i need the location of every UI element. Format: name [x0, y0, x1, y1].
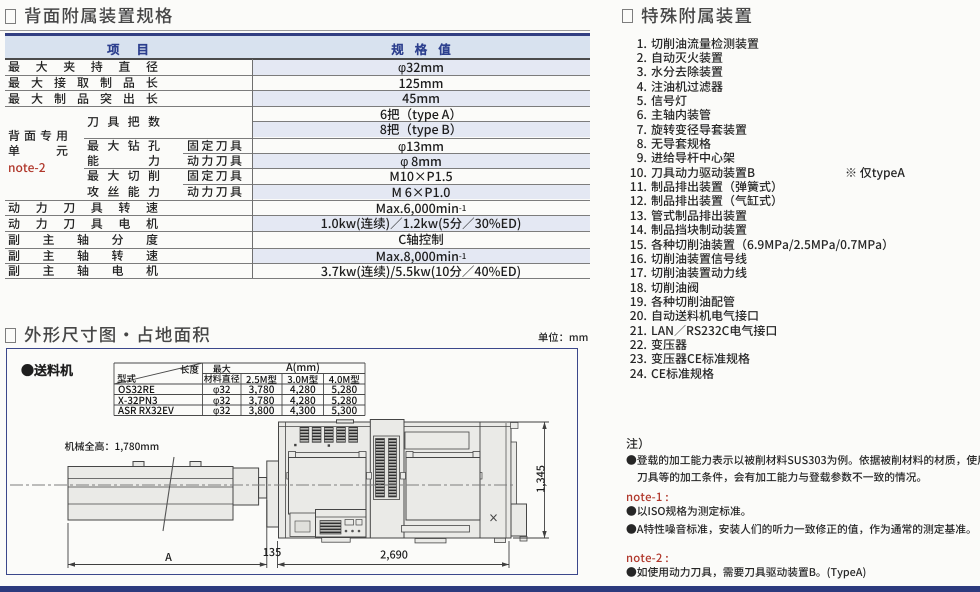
svg-text:2,690: 2,690 [380, 547, 408, 563]
svg-text:A: A [165, 549, 172, 565]
svg-text:1,345: 1,345 [533, 465, 549, 493]
svg-text:135: 135 [263, 544, 281, 560]
